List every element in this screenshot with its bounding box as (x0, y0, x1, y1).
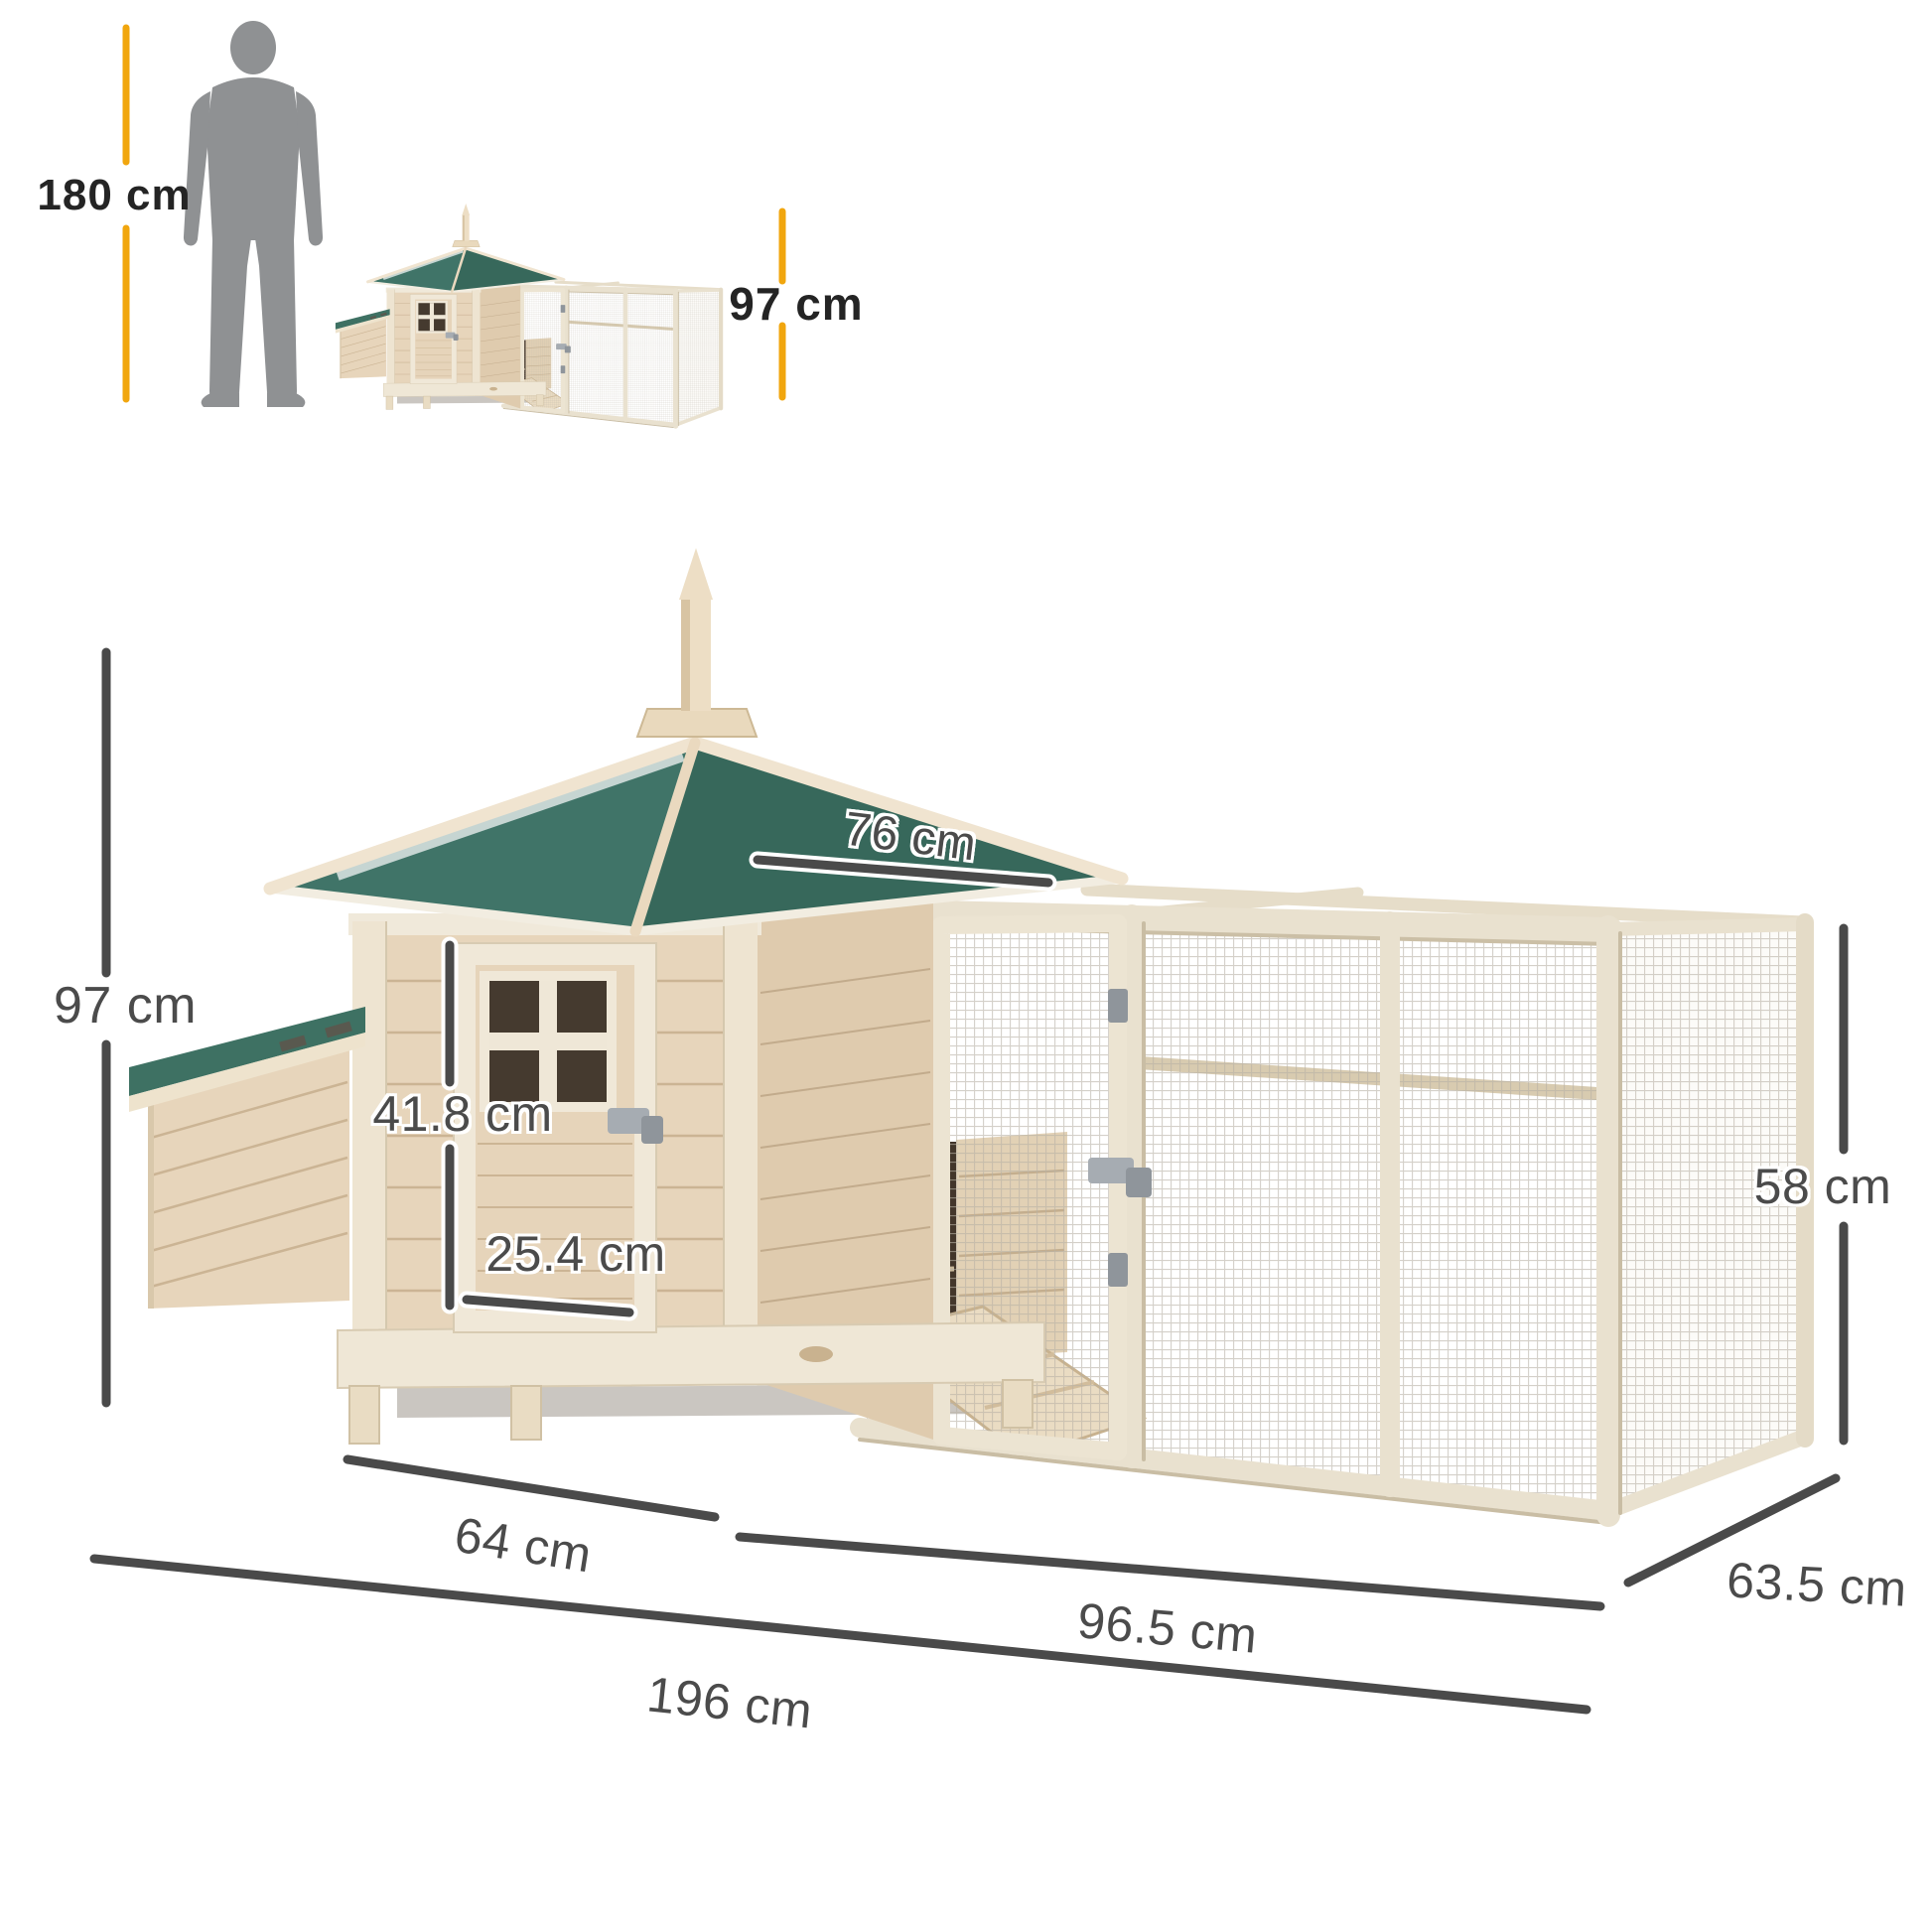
person-silhouette-icon (184, 21, 323, 407)
house-length-line (347, 1459, 715, 1517)
depth-label: 63.5 cm (1725, 1551, 1908, 1617)
person-height-label: 180 cm (37, 171, 191, 220)
door-height-label: 41.8 cm (372, 1085, 552, 1143)
mini-product-height-label: 97 cm (729, 277, 863, 331)
run-length-line (740, 1537, 1600, 1606)
door-width-label: 25.4 cm (485, 1225, 665, 1283)
product-dimension-diagram: 180 cm 97 cm 97 cm 76 cm 41.8 cm 25.4 cm… (0, 0, 1932, 1932)
overall-length-line (94, 1559, 1587, 1710)
run-height-label: 58 cm (1754, 1158, 1892, 1215)
mini-coop-image (336, 204, 721, 428)
coop-dimension-scene (0, 0, 1932, 1932)
coop-image (129, 548, 1805, 1523)
overall-height-label: 97 cm (54, 976, 197, 1035)
